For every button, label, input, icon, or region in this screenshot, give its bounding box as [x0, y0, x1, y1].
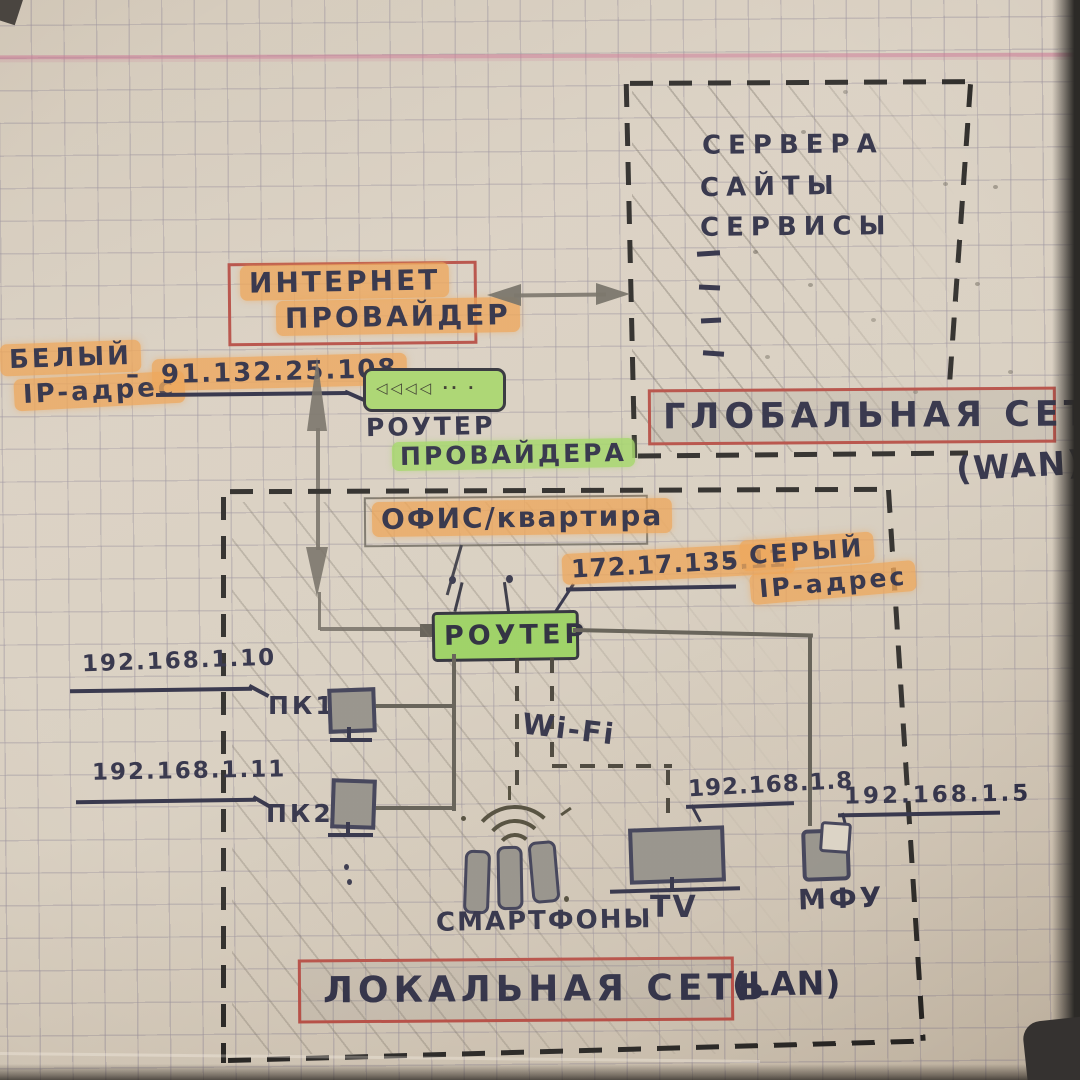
- antenna-tip: [449, 576, 456, 584]
- router-label: РОУТЕР: [444, 619, 589, 652]
- wifi-link-phones: [515, 658, 519, 790]
- provider-router-label-line1: РОУТЕР: [366, 411, 496, 442]
- wifi-arc-spark: [461, 816, 466, 821]
- photo-edge-bottom: [0, 1064, 1080, 1080]
- smartphone-1: [463, 850, 491, 915]
- wifi-arcs-tick: [508, 786, 511, 800]
- photo-edge-right: [1052, 0, 1080, 1080]
- arrow-right-head: [596, 283, 630, 305]
- pc2-ip: 192.168.1.11: [92, 756, 287, 785]
- provider-router-label-line2: ПРОВАЙДЕРА: [392, 438, 635, 471]
- mfu-ip: 192.168.1.5: [844, 780, 1032, 809]
- smartphone-2: [496, 846, 523, 910]
- wan-item-services: СЕРВИСЫ: [700, 211, 893, 243]
- antenna-tip: [506, 575, 513, 583]
- wire-mfu-down: [808, 634, 812, 826]
- lan-title: ЛОКАЛЬНАЯ СЕТЬ: [323, 967, 770, 1011]
- wifi-link-tv-v2: [666, 770, 670, 822]
- wire-router-down: [452, 654, 456, 811]
- wan-pencil-specks: [753, 250, 758, 254]
- pc1-label: ПК1: [268, 691, 336, 720]
- white-ip-dash: –: [126, 360, 142, 390]
- tv-screen: [628, 825, 726, 884]
- pc2-base: [328, 833, 373, 837]
- photo-corner-bottom-right: [1022, 1014, 1080, 1080]
- gray-ip-dash: -: [723, 546, 737, 575]
- tv-label: TV: [650, 890, 698, 925]
- wan-ellipsis-dash: [699, 284, 720, 290]
- pc2-monitor: [330, 778, 377, 830]
- wan-ellipsis-dash: [701, 317, 721, 323]
- notebook-page: СЕРВЕРА САЙТЫ СЕРВИСЫ ГЛОБАЛЬНАЯ СЕТЬ (W…: [0, 0, 1080, 1080]
- wire-pc1: [368, 704, 456, 708]
- pc1-monitor: [327, 687, 377, 734]
- mfu-paper-tray: [819, 821, 852, 854]
- white-ip-label-line1: БЕЛЫЙ: [0, 340, 141, 377]
- wire-pc2: [372, 806, 456, 810]
- wan-item-sites: САЙТЫ: [700, 171, 841, 203]
- provider-name-line2: ПРОВАЙДЕР: [276, 297, 520, 336]
- smartphone-3: [527, 840, 560, 904]
- provider-name-line1: ИНТЕРНЕТ: [240, 262, 450, 301]
- smartphones-label: СМАРТФОНЫ: [436, 904, 653, 938]
- pc1-base: [330, 738, 372, 742]
- arrow-up-head: [307, 357, 327, 431]
- wan-item-servers: СЕРВЕРА: [702, 129, 884, 161]
- lan-subtitle: (LAN): [732, 963, 842, 1004]
- office-label: ОФИС/квартира: [372, 498, 673, 537]
- wan-title: ГЛОБАЛЬНАЯ СЕТЬ: [663, 394, 1080, 437]
- provider-router-device: ◁◁◁◁ ·· ·: [363, 368, 506, 412]
- more-pcs-ellipsis: [344, 864, 349, 870]
- more-pcs-ellipsis: [347, 879, 352, 885]
- ink-dot: [564, 896, 569, 902]
- arrow-left-head: [487, 284, 521, 306]
- wan-title-box: ГЛОБАЛЬНАЯ СЕТЬ: [648, 387, 1056, 446]
- pc2-label: ПК2: [266, 799, 334, 828]
- wifi-link-tv-h: [552, 764, 672, 768]
- lan-title-box: ЛОКАЛЬНАЯ СЕТЬ: [298, 956, 734, 1023]
- provider-router-ports: ◁◁◁◁ ·· ·: [376, 379, 477, 397]
- mfu-label: МФУ: [797, 881, 884, 917]
